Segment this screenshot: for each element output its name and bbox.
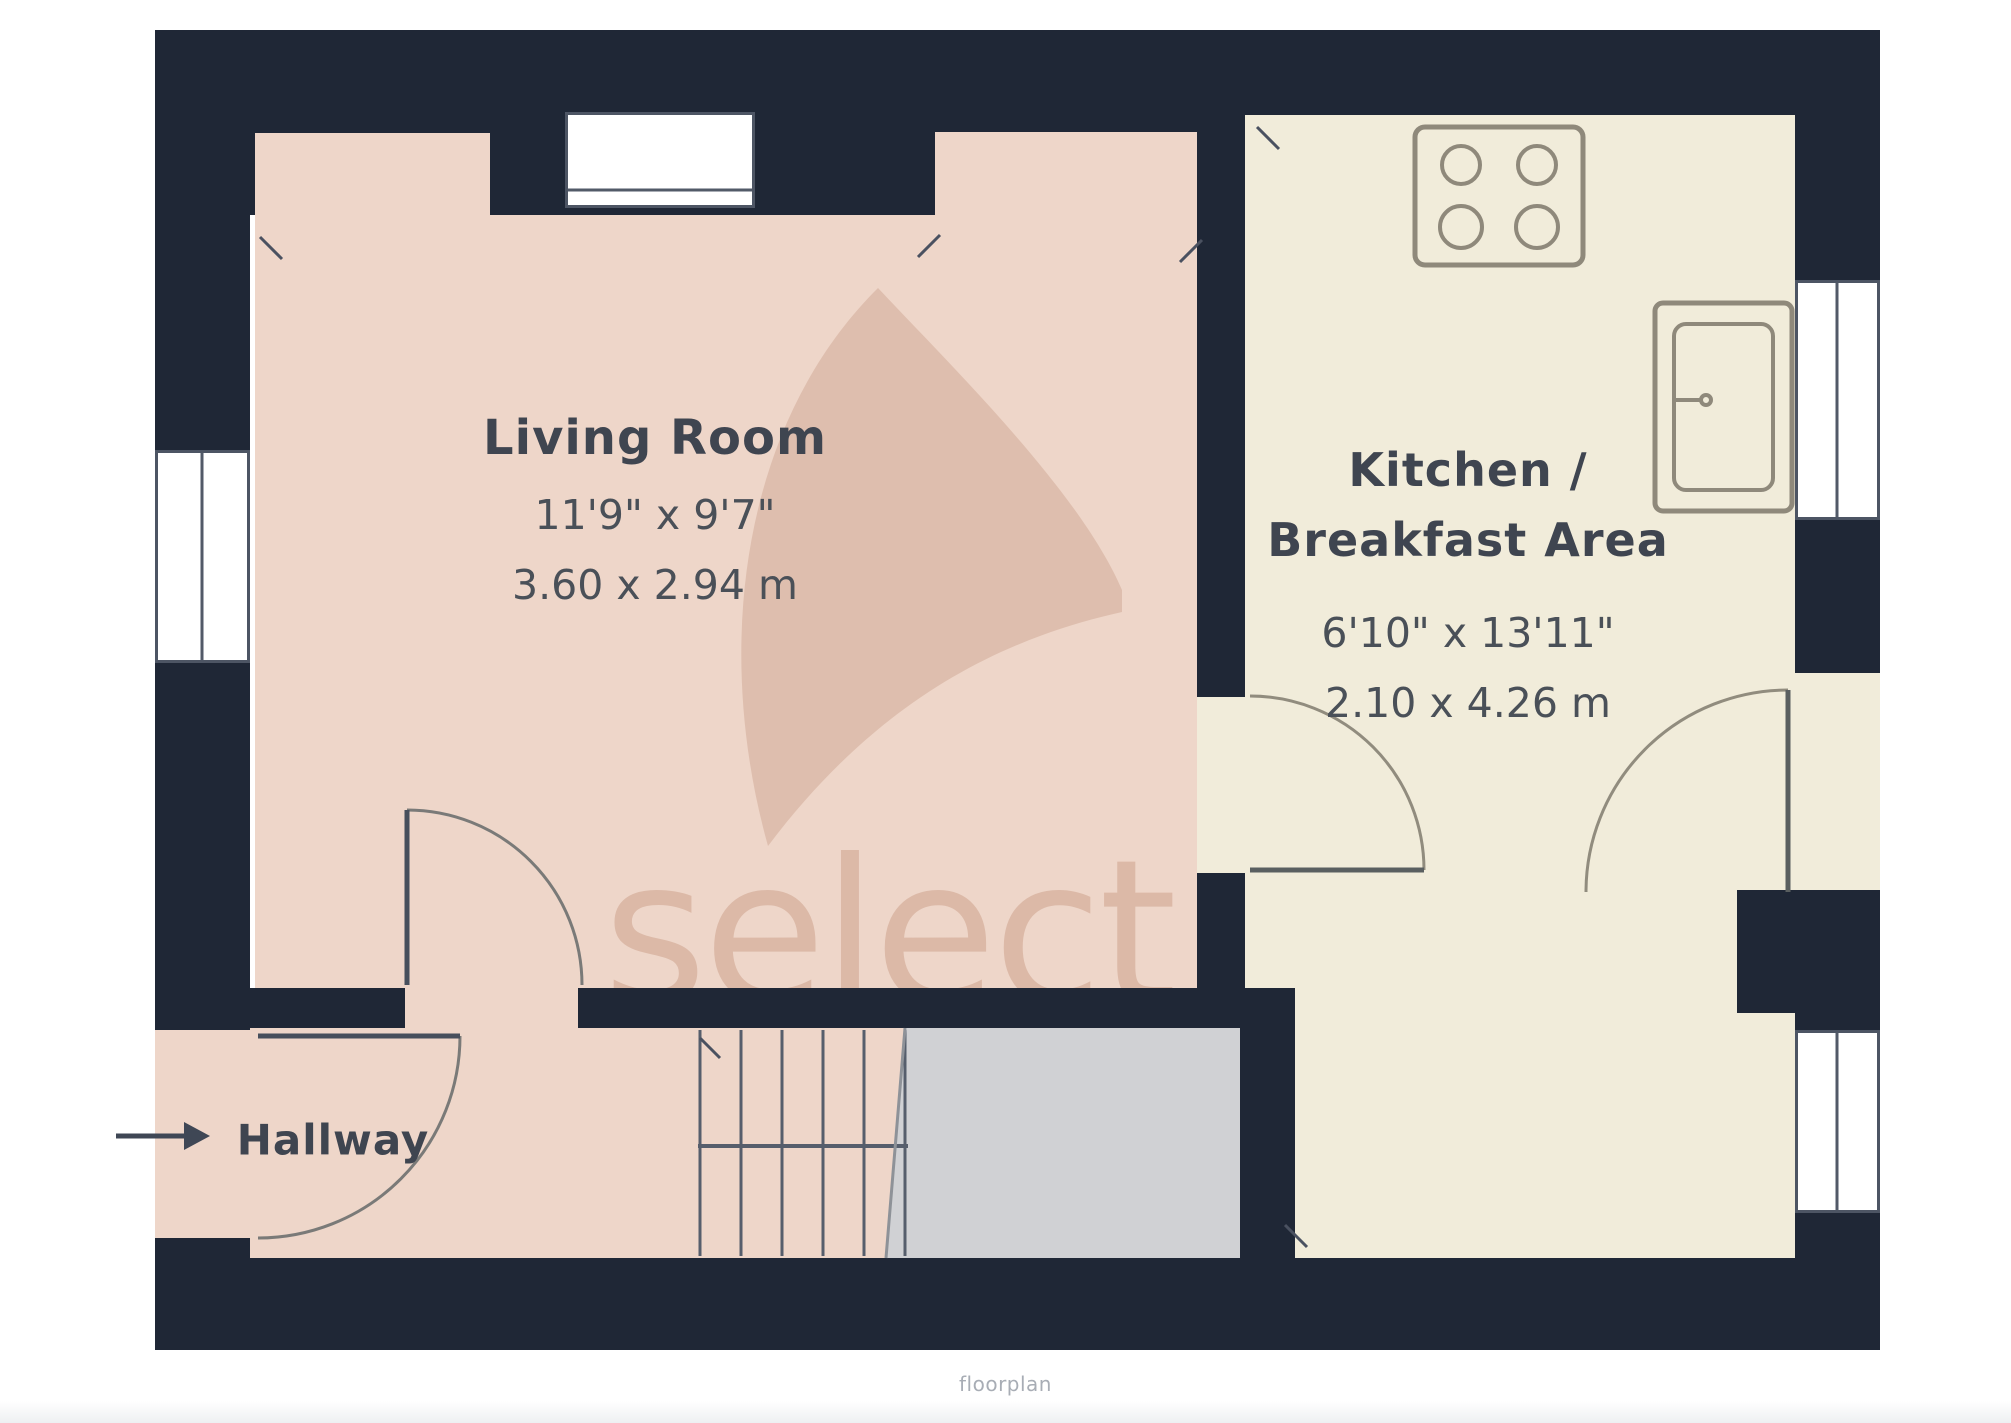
window-right-upper	[1795, 280, 1880, 520]
back-door-opening	[1795, 673, 1880, 890]
kitchen-dims-imperial: 6'10" x 13'11"	[1321, 609, 1614, 657]
living-room-alcove-right	[935, 132, 1197, 215]
living-room-alcove-left	[255, 133, 490, 215]
kitchen-label-line2: Breakfast Area	[1267, 513, 1669, 567]
window-right-lower	[1795, 1030, 1880, 1213]
wall-right-notch	[1737, 890, 1795, 1013]
footer-brand-text: floorplan	[0, 1372, 2011, 1396]
kitchen-label-line1: Kitchen /	[1348, 443, 1587, 497]
wall-living-hallway	[155, 988, 1295, 1028]
living-room-dims-metric: 3.60 x 2.94 m	[512, 561, 798, 609]
living-room-label: Living Room	[483, 410, 827, 466]
window-left	[155, 450, 250, 663]
living-room-dims-imperial: 11'9" x 9'7"	[534, 491, 775, 539]
kitchen-dims-metric: 2.10 x 4.26 m	[1325, 679, 1611, 727]
wall-left-mid	[155, 663, 250, 1030]
floorplan-canvas: select	[0, 0, 2011, 1423]
wall-stairs-kitchen	[1240, 1028, 1295, 1258]
hallway-label: Hallway	[237, 1116, 430, 1165]
wall-left-upper	[155, 215, 250, 450]
kitchen-door-opening	[1197, 697, 1245, 873]
living-room-door-opening	[405, 988, 578, 1028]
wall-top-kitchen	[1245, 30, 1880, 115]
bottom-page-edge	[0, 1401, 2011, 1423]
wall-bottom	[155, 1258, 1880, 1350]
window-top	[565, 112, 755, 208]
